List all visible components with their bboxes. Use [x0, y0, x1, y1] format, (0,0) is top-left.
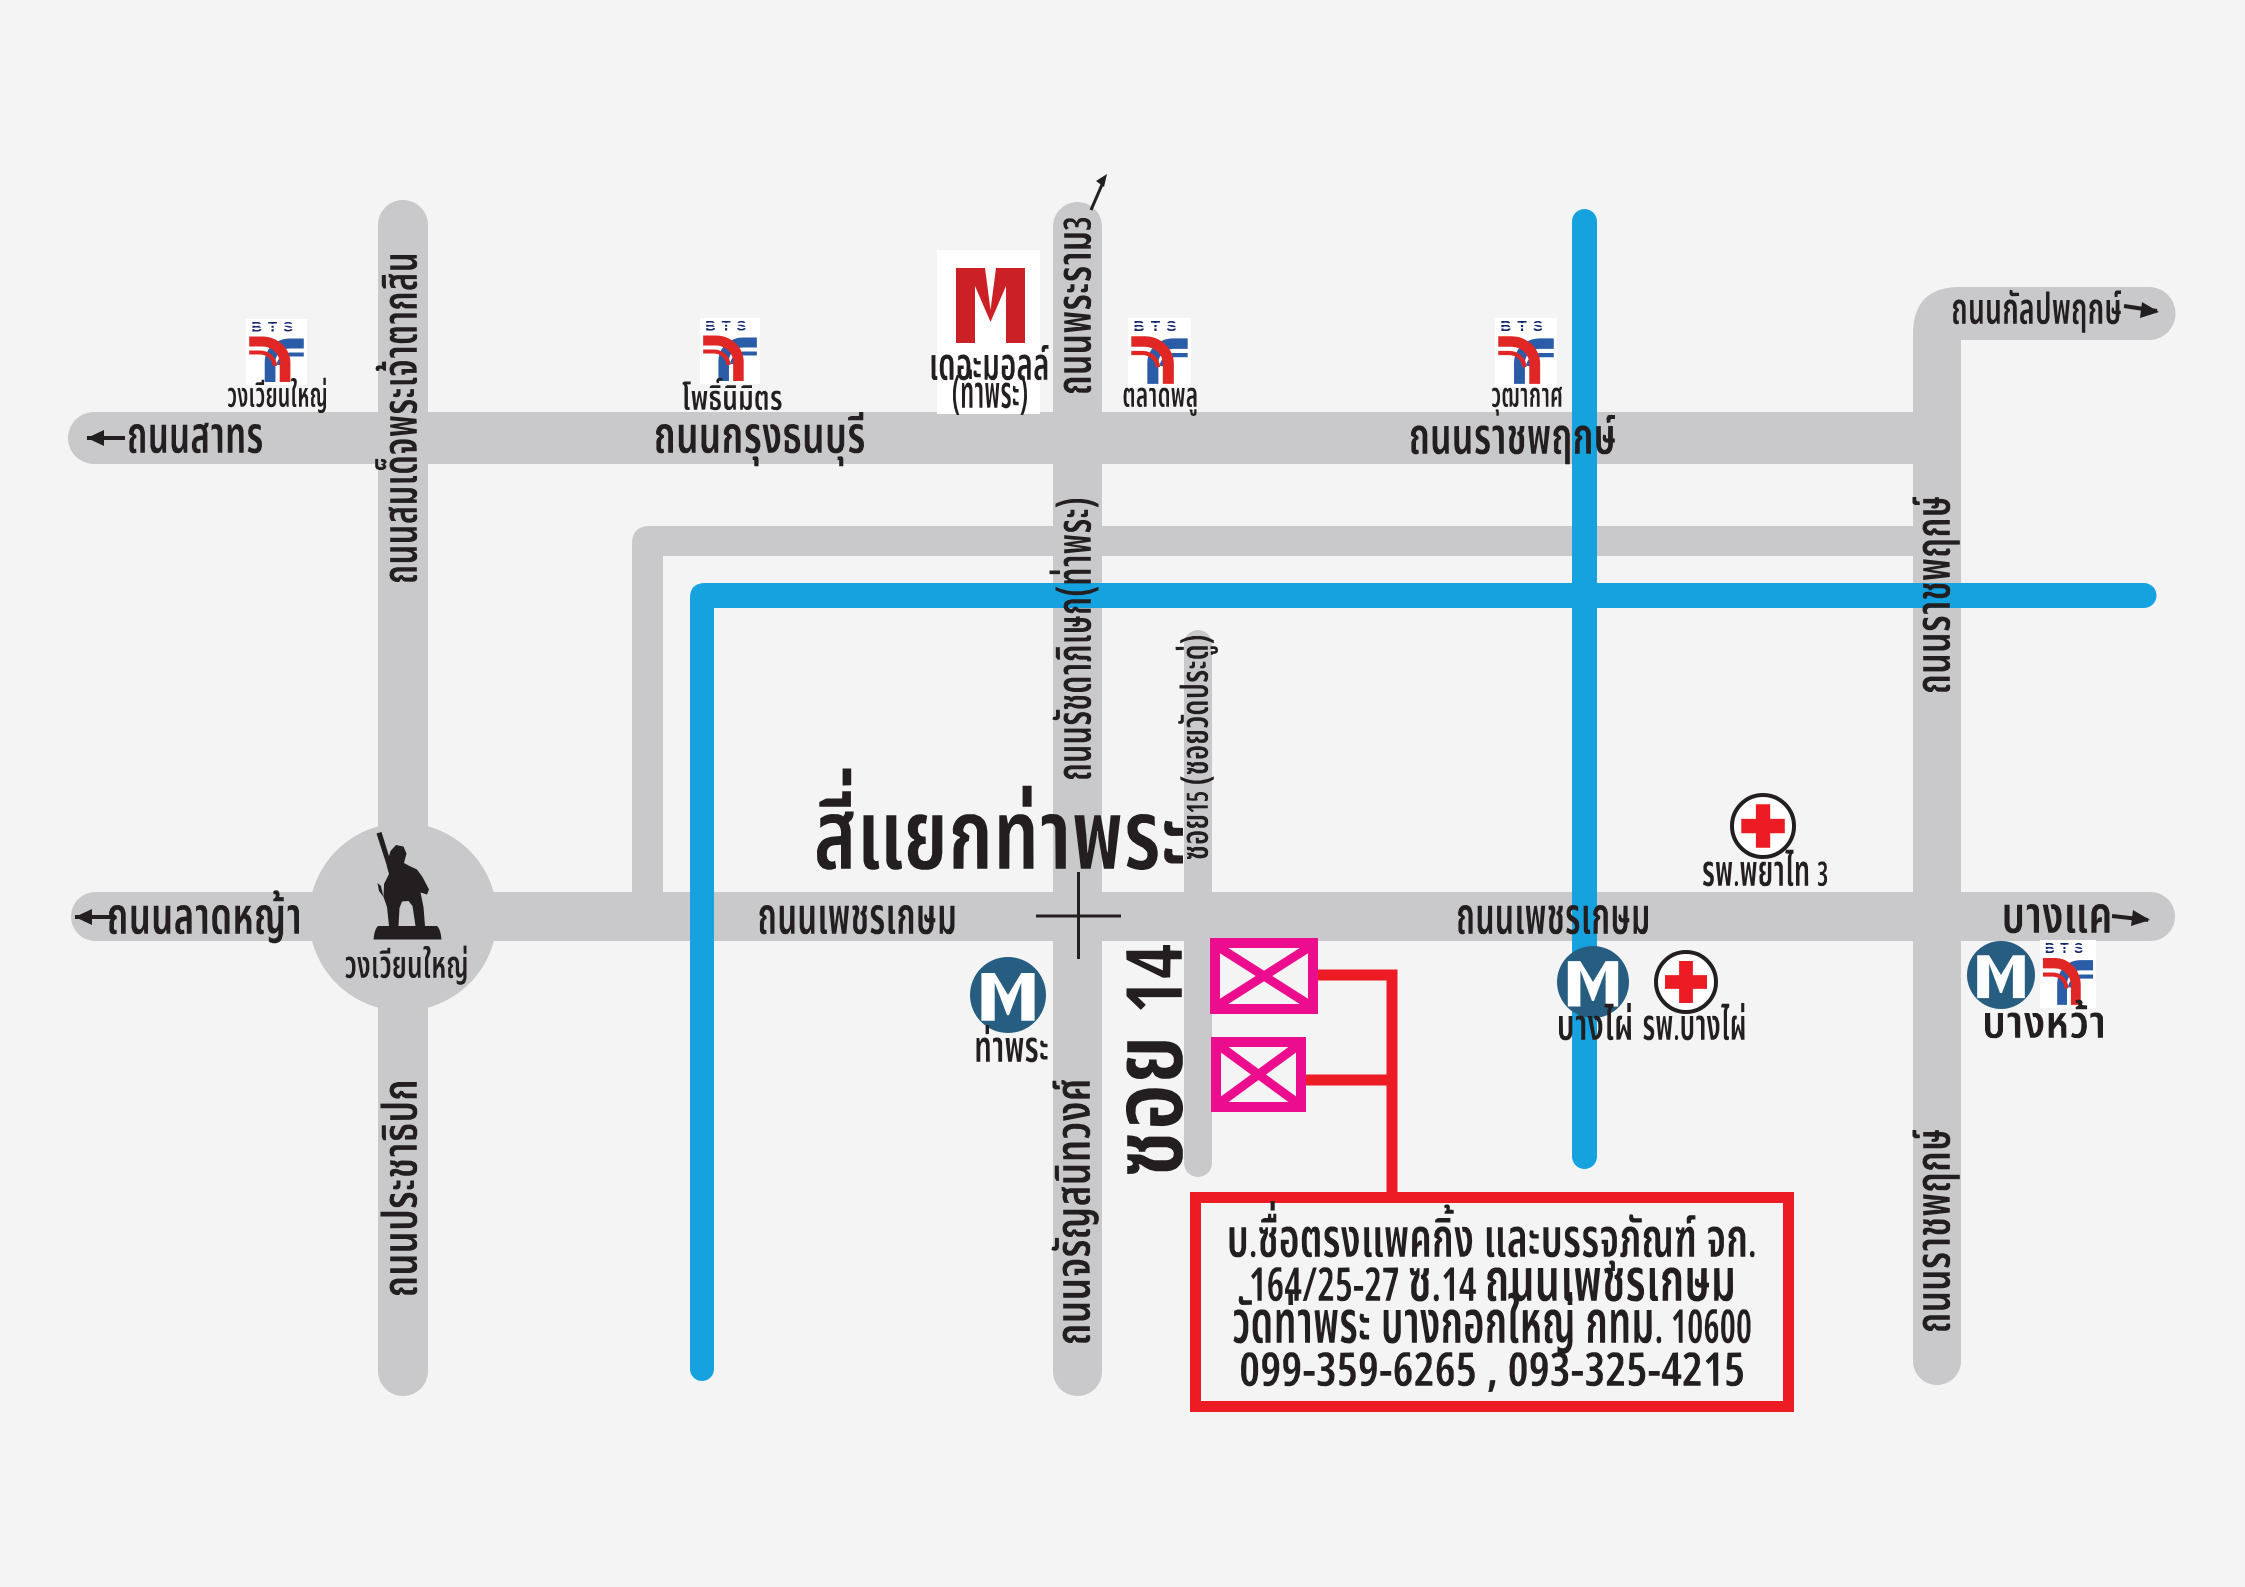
svg-text:BTS: BTS	[251, 320, 299, 335]
svg-text:BTS: BTS	[705, 319, 752, 335]
svg-text:BTS: BTS	[1134, 318, 1183, 335]
svg-text:BTS: BTS	[2045, 940, 2089, 956]
svg-text:BTS: BTS	[1500, 318, 1548, 335]
